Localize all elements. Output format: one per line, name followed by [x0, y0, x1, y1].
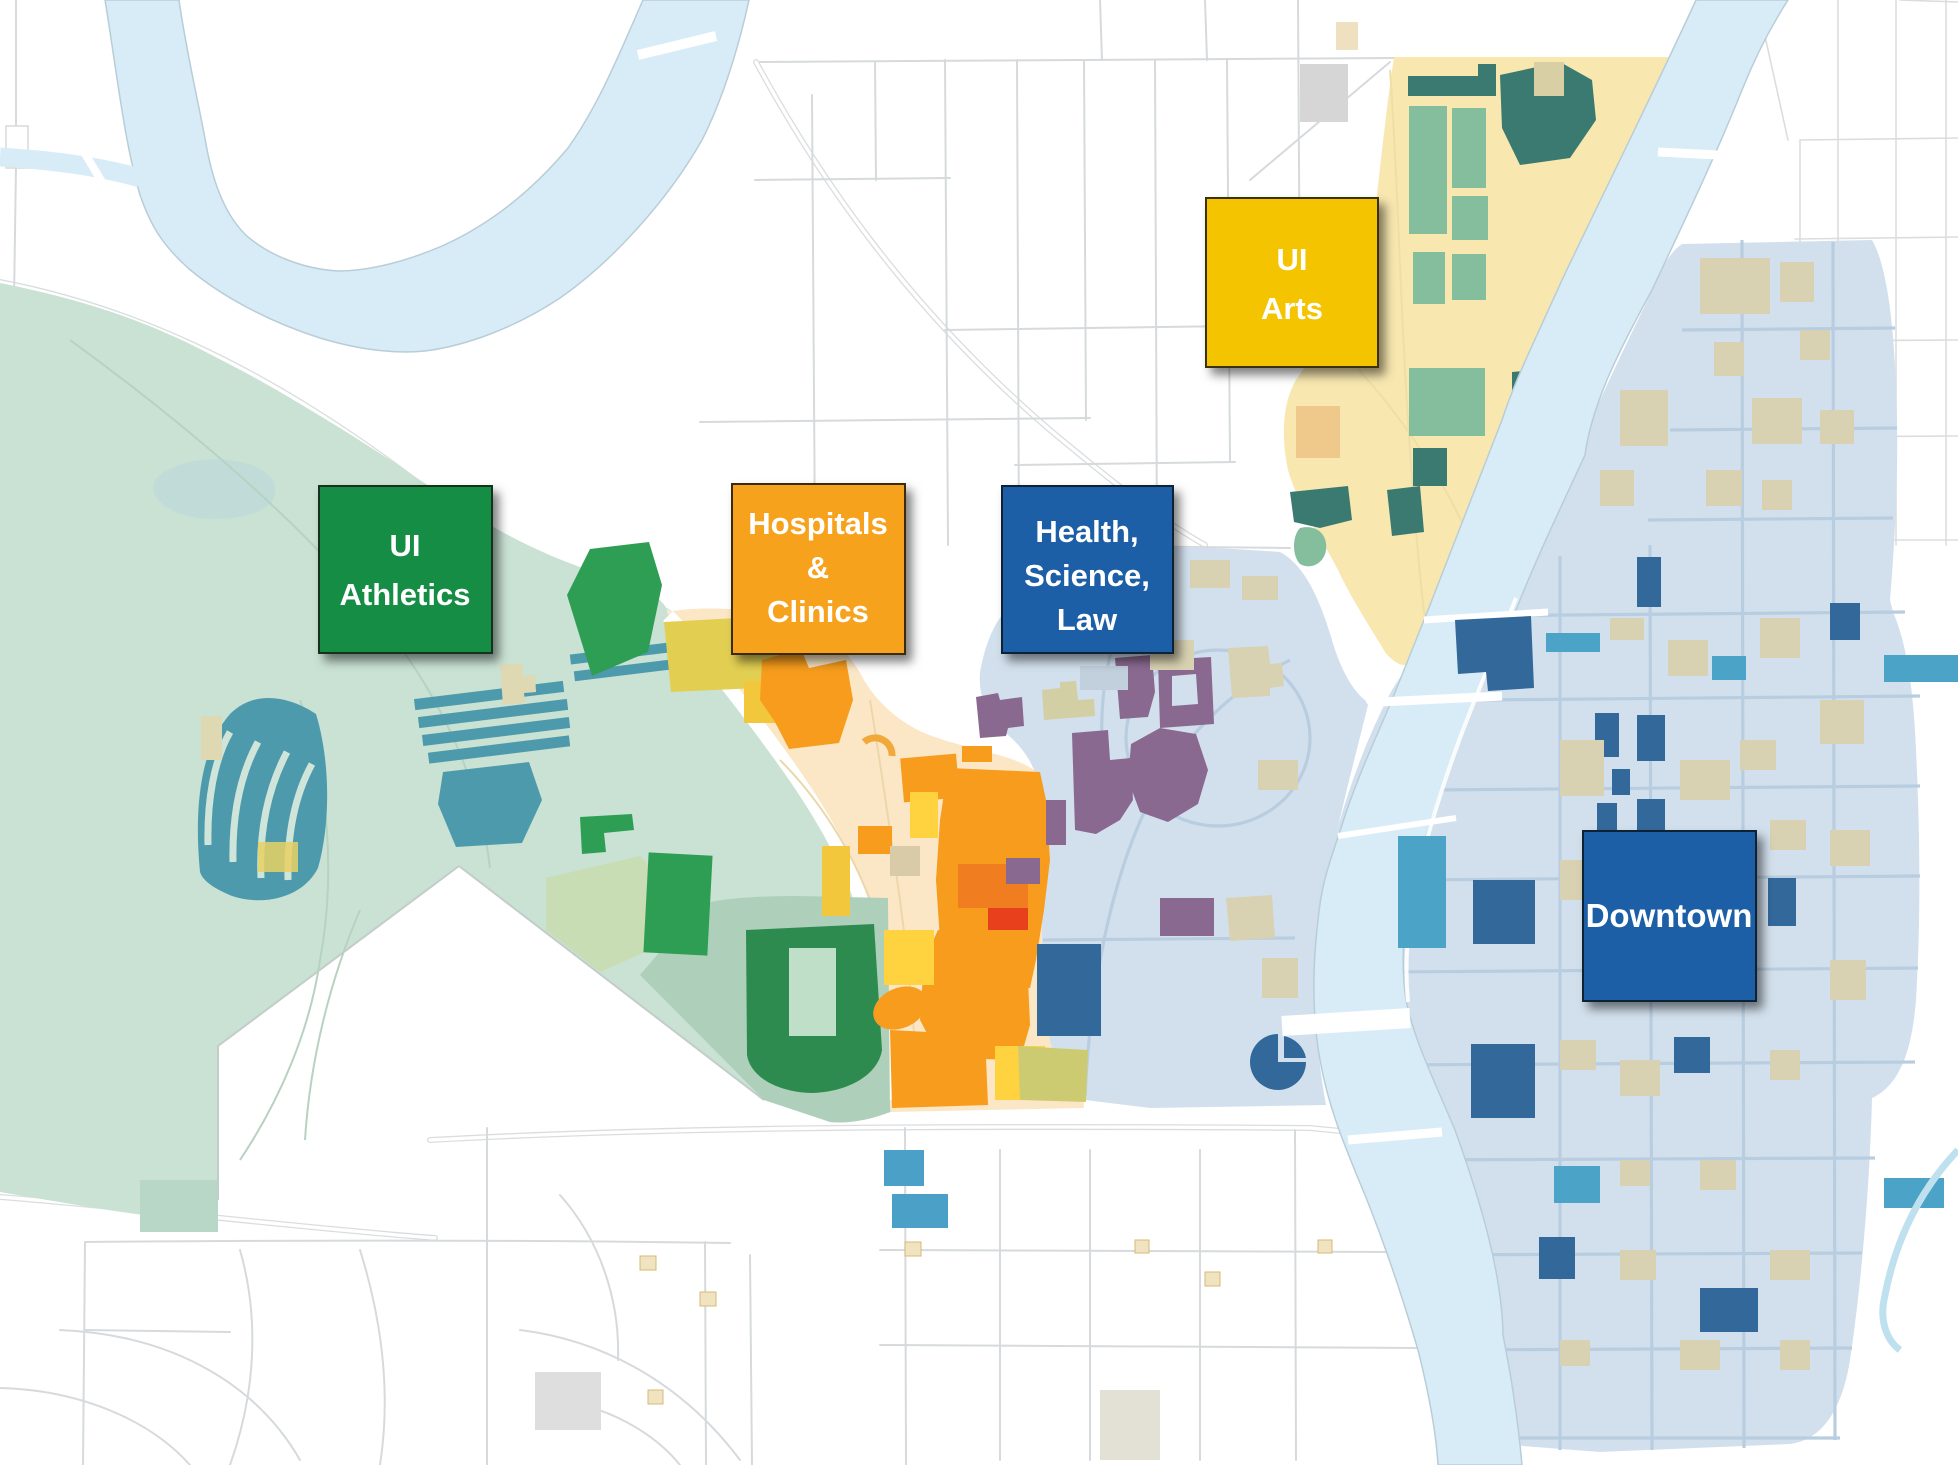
- svg-text:Hospitals: Hospitals: [748, 506, 888, 541]
- svg-text:Athletics: Athletics: [340, 577, 471, 612]
- svg-text:Health,: Health,: [1035, 514, 1138, 549]
- svg-text:UI: UI: [390, 528, 421, 563]
- svg-text:Arts: Arts: [1261, 291, 1323, 326]
- svg-text:&: &: [807, 550, 829, 585]
- svg-text:Science,: Science,: [1024, 558, 1150, 593]
- svg-text:Law: Law: [1057, 602, 1118, 637]
- svg-text:Clinics: Clinics: [767, 594, 869, 629]
- svg-text:UI: UI: [1277, 242, 1308, 277]
- svg-text:Downtown: Downtown: [1586, 897, 1753, 934]
